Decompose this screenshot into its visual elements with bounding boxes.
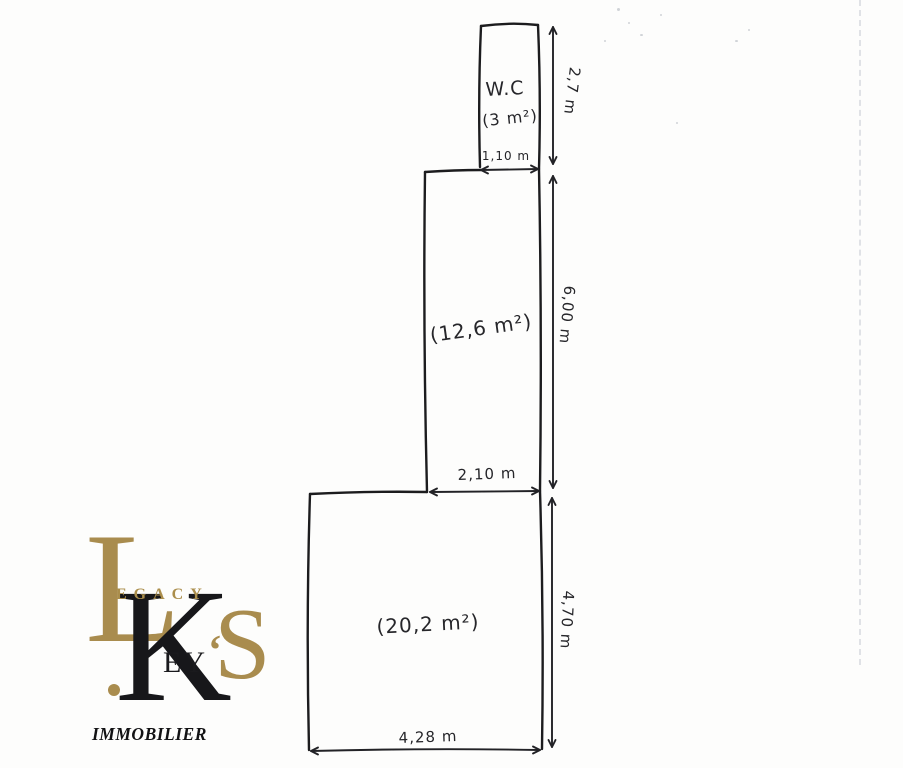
main-room-right-wall	[540, 491, 543, 749]
scan-speck	[604, 40, 606, 42]
wc-room-top-wall	[481, 24, 538, 26]
logo-subtitle: IMMOBILIER	[92, 726, 207, 744]
logo-word-legacy: EGACY	[116, 587, 209, 603]
scan-speck	[617, 8, 620, 11]
wc-width-dim-line	[481, 169, 538, 170]
scan-speck	[735, 40, 738, 42]
dimension-arrows	[311, 27, 557, 755]
wc-width-label: 1,10 m	[482, 149, 530, 163]
main-width-dim-line	[311, 749, 540, 751]
wc-room-label: W.C	[485, 77, 525, 101]
scan-speck	[748, 29, 750, 31]
wc-room-right-wall	[538, 25, 540, 169]
floor-plan-sketch: W.C (3 m²) 1,10 m 2,7 m (12,6 m²) 2,10 m…	[0, 0, 903, 768]
middle-room-top-wall	[425, 170, 481, 172]
scan-fold-line	[859, 0, 861, 665]
scan-speck	[676, 122, 678, 124]
main-room-width-label: 4,28 m	[398, 727, 457, 747]
main-room-top-wall	[310, 492, 427, 494]
middle-room-left-wall	[424, 172, 427, 492]
logo-word-key: EY	[163, 648, 207, 678]
scan-speck	[660, 14, 662, 16]
middle-width-dim-line	[430, 491, 539, 492]
logo-dot-icon	[108, 684, 120, 696]
middle-room-right-wall	[539, 169, 541, 491]
middle-room-width-label: 2,10 m	[457, 464, 516, 484]
main-room-height-label: 4,70 m	[556, 590, 577, 650]
scan-speck	[640, 34, 643, 36]
scan-speck	[628, 22, 630, 24]
agency-logo: L EGACY K EY ‘ S IMMOBILIER	[75, 548, 290, 763]
logo-apostrophe: ‘	[208, 630, 222, 672]
wc-room-left-wall	[479, 26, 481, 167]
main-room-left-wall	[308, 494, 310, 750]
